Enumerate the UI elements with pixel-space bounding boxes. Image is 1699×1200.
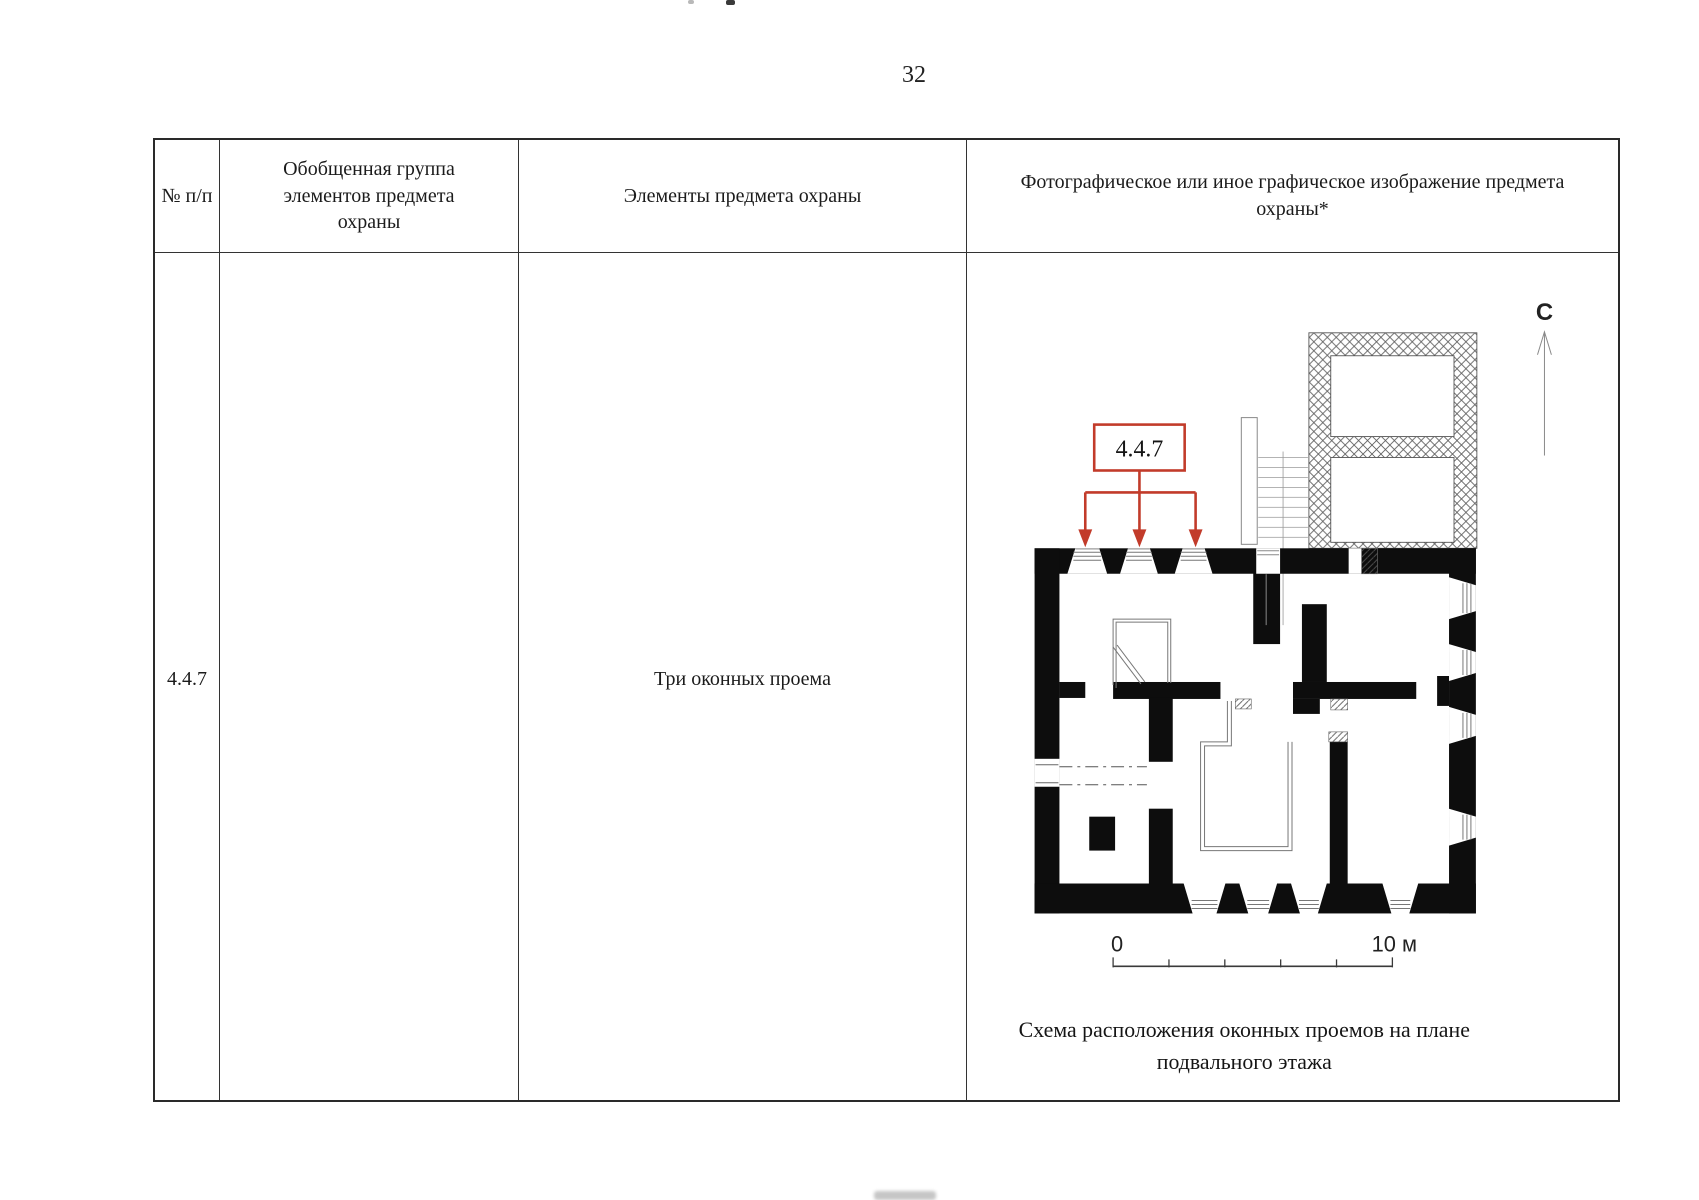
header-group-label: Обобщенная группа элементов предмета охр… (262, 156, 476, 236)
row-number-cell: 4.4.7 (155, 253, 220, 1100)
caption-line-2: подвального этажа (1157, 1049, 1332, 1074)
header-number-label: № п/п (161, 183, 212, 210)
plan-walls (1035, 548, 1476, 913)
top-wall-windows (1067, 548, 1212, 573)
header-elements-column: Элементы предмета охраны (519, 140, 967, 253)
annotation-arrowhead-left (1078, 529, 1092, 547)
annotation-arrow-lines (1085, 470, 1195, 530)
annotation-arrowhead-right (1189, 529, 1203, 547)
hatched-patches (1235, 699, 1347, 742)
scan-smudge-bottom (874, 1191, 936, 1200)
header-image-column: Фотографическое или иное графическое изо… (967, 140, 1618, 253)
protection-elements-table: № п/п Обобщенная группа элементов предме… (153, 138, 1620, 1102)
row-element: Три оконных проема (519, 668, 966, 691)
annotation-label: 4.4.7 (1116, 436, 1164, 462)
header-elements-label: Элементы предмета охраны (624, 183, 862, 210)
row-image-cell: 4.4.7 С 0 10 м Схема расположе (967, 253, 1618, 1100)
page-number: 32 (888, 62, 940, 89)
header-number-column: № п/п (155, 140, 220, 253)
scan-mark-top (726, 0, 735, 5)
scale-bar: 0 10 м (1111, 931, 1417, 967)
annotation-arrowhead-middle (1132, 529, 1146, 547)
row-number: 4.4.7 (155, 668, 219, 691)
annex-hatched-walls (1309, 333, 1477, 548)
scan-mark-top-2 (688, 0, 694, 4)
north-indicator: С (1536, 299, 1553, 456)
header-group-column: Обобщенная группа элементов предмета охр… (220, 140, 519, 253)
row-group-cell (220, 253, 519, 1100)
left-wall-opening (1035, 759, 1147, 787)
basement-floor-plan: 4.4.7 С 0 10 м Схема расположе (967, 253, 1618, 1100)
scale-end-label: 10 м (1372, 931, 1417, 956)
scale-start-label: 0 (1111, 931, 1123, 956)
header-image-label: Фотографическое или иное графическое изо… (1008, 169, 1578, 222)
caption-line-1: Схема расположения оконных проемов на пл… (1019, 1017, 1470, 1042)
annotation-4-4-7: 4.4.7 (1078, 425, 1202, 548)
row-element-cell: Три оконных проема (519, 253, 967, 1100)
north-label: С (1536, 299, 1553, 326)
scanned-document-page: { "page": { "number": "32" }, "table": {… (0, 0, 1699, 1200)
diagram-caption: Схема расположения оконных проемов на пл… (1019, 1017, 1470, 1074)
